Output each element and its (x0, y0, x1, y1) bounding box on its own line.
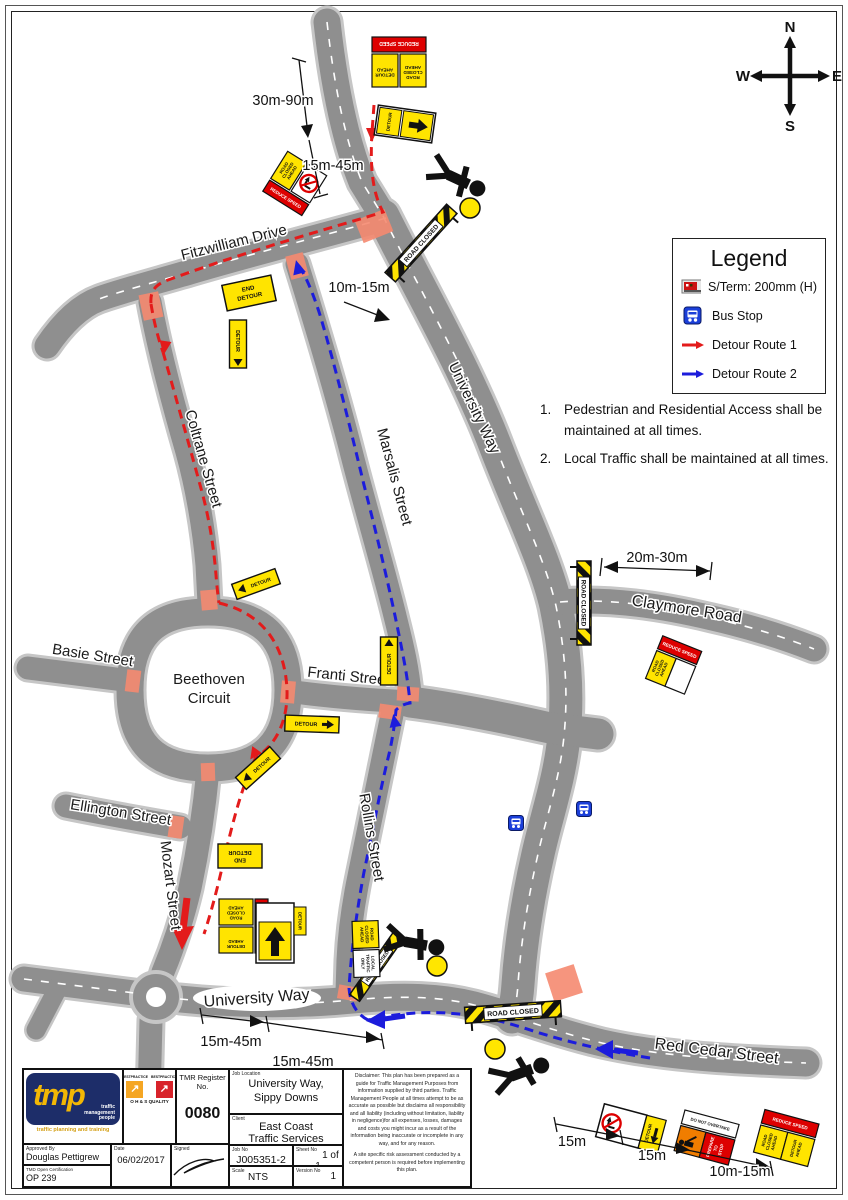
badge1-header: BESTPRACTICE (123, 1075, 148, 1079)
svg-text:AHEAD: AHEAD (228, 939, 243, 944)
signed-label: Signed (172, 1145, 228, 1153)
sign-detour-arrow-north: DETOUR (374, 105, 436, 143)
tmp-logo-brand: tmp (33, 1077, 84, 1113)
label-beethoven-2: Circuit (188, 690, 231, 707)
traffic-management-plan-page: { "compass": {"n": "N", "e": "E", "s": "… (0, 0, 848, 1200)
certification-value: OP 239 (24, 1173, 110, 1183)
job-no-label: Job No (230, 1146, 250, 1154)
sign-detour-up-arrow: DETOUR (256, 903, 306, 963)
job-location-label: Job Location (230, 1070, 342, 1078)
job-no-cell: Job No J005351-2 (229, 1145, 293, 1166)
svg-text:DETOUR: DETOUR (228, 849, 251, 855)
client-value-2: Traffic Services (230, 1133, 342, 1145)
sign-detour-coltrane-top: DETOUR (230, 320, 247, 368)
legend-item-route2: Detour Route 2 (673, 359, 825, 388)
svg-text:ONLY: ONLY (360, 958, 365, 970)
approved-by-value: Douglas Pettigrew (24, 1152, 110, 1162)
job-location-cell: Job Location University Way, Sippy Downs (229, 1069, 343, 1114)
svg-text:DETOUR: DETOUR (387, 653, 393, 674)
date-label: Date (112, 1145, 170, 1153)
sheet-no-label: Sheet No (294, 1146, 319, 1154)
dim-10m-15m-top: 10m-15m (328, 280, 389, 296)
dim-10m-15m-rc3: 10m-15m (709, 1164, 770, 1180)
signature (172, 1153, 226, 1181)
compass-rose: N S W E (736, 19, 842, 135)
sign-detour-coltrane-mid: DETOUR (232, 569, 281, 600)
badges-cell: BESTPRACTICE ↗ BESTPRACTICE ↗ O H & S QU… (123, 1069, 176, 1144)
version-label: Version No (294, 1167, 322, 1175)
certification-label: TMD Open Certification (24, 1166, 110, 1173)
dim-15m-45m-b1: 15m-45m (200, 1034, 261, 1050)
traffic-plan-map: Fitzwilliam Drive Coltrane Street Marsal… (0, 0, 848, 1200)
dim-15m-rc1: 15m (558, 1134, 586, 1150)
svg-text:AHEAD: AHEAD (359, 927, 365, 942)
sign-cluster-north: ROAD CLOSED AHEAD DETOUR AHEAD REDUCE SP… (372, 37, 426, 87)
svg-text:DETOUR: DETOUR (234, 330, 240, 352)
note-1: 1. Pedestrian and Residential Access sha… (540, 400, 838, 442)
scale-label: Scale (230, 1167, 247, 1175)
svg-text:REDUCE SPEED: REDUCE SPEED (379, 40, 419, 46)
red-arrow-icon (681, 340, 705, 350)
compass-e: E (832, 68, 842, 85)
job-location-value-2: Sippy Downs (230, 1092, 342, 1106)
sign-prepare-to-stop-redcedar: PREPARE TO STOP DO NOT OVERTAKE (674, 1110, 739, 1165)
tmr-value: 0080 (177, 1105, 228, 1123)
client-value-1: East Coast (230, 1121, 342, 1133)
certification-cell: TMD Open Certification OP 239 (23, 1165, 111, 1187)
version-cell: Version No 1 (293, 1166, 343, 1187)
scale-cell: Scale NTS (229, 1166, 293, 1187)
legend-item-bus-stop: Bus Stop (673, 301, 825, 330)
compass-s: S (785, 118, 795, 135)
badge2-arrow-icon: ↗ (156, 1081, 173, 1098)
date-cell: Date 06/02/2017 (111, 1144, 171, 1187)
bus-stop-icon (681, 306, 705, 325)
dim-30m-90m: 30m-90m (252, 93, 313, 109)
dim-20m-30m: 20m-30m (626, 550, 687, 566)
badges-caption: O H & S QUALITY (124, 1099, 175, 1104)
badge1-arrow-icon: ↗ (126, 1081, 143, 1098)
disclaimer-cell: Disclaimer: This plan has been prepared … (343, 1069, 471, 1187)
label-beethoven-1: Beethoven (173, 671, 245, 688)
svg-text:AHEAD: AHEAD (376, 68, 393, 73)
badge2-header: BESTPRACTICE (151, 1075, 176, 1079)
sign-detour-franti: DETOUR (285, 715, 340, 733)
blue-arrow-icon (681, 369, 705, 379)
dim-15m-45m-top: 15m-45m (302, 158, 363, 174)
sign-cluster-redcedar-east: ROAD CLOSED AHEAD DETOUR AHEAD REDUCE SP… (754, 1110, 819, 1167)
scale-value: NTS (248, 1172, 292, 1183)
svg-text:ROAD CLOSED: ROAD CLOSED (580, 580, 587, 627)
bus-stop-icon (509, 816, 524, 831)
tmp-logo-tagline: traffic planning and training (24, 1127, 122, 1133)
logo-cell: tmp traffic management people traffic pl… (23, 1069, 123, 1144)
disclaimer-paragraph-2: A site specific risk assessment conducte… (348, 1152, 466, 1175)
legend-title: Legend (673, 245, 825, 272)
svg-text:DETOUR: DETOUR (295, 721, 318, 728)
approved-by-cell: Approved By Douglas Pettigrew (23, 1144, 111, 1165)
legend-item-route1: Detour Route 1 (673, 330, 825, 359)
compass-w: W (736, 68, 751, 85)
client-cell: Client East Coast Traffic Services (229, 1114, 343, 1145)
sterm-icon (681, 279, 701, 295)
disclaimer-paragraph-1: Disclaimer: This plan has been prepared … (348, 1073, 466, 1148)
svg-text:END: END (234, 857, 246, 863)
controller-paddle (485, 1039, 505, 1059)
controller-paddle (427, 956, 447, 976)
roundabout-island (146, 987, 166, 1007)
title-block: tmp traffic management people traffic pl… (22, 1068, 472, 1188)
note-2-text: Local Traffic shall be maintained at all… (564, 449, 829, 470)
sign-end-detour-mozart: END DETOUR (218, 844, 262, 868)
note-1-text: Pedestrian and Residential Access shall … (564, 400, 838, 442)
job-location-value-1: University Way, (230, 1078, 342, 1092)
bus-stop-icon (577, 802, 592, 817)
legend-box: Legend S/Term: 200mm (H) Bus Stop Detour… (672, 238, 826, 394)
tmp-logo: tmp traffic management people (26, 1073, 120, 1125)
sign-end-detour-fitzwilliam: END DETOUR (222, 275, 276, 311)
note-2: 2. Local Traffic shall be maintained at … (540, 449, 838, 470)
svg-text:AHEAD: AHEAD (228, 906, 243, 911)
road-basie (28, 668, 132, 681)
date-value: 06/02/2017 (112, 1155, 170, 1166)
compass-n: N (785, 19, 796, 36)
sign-detour-marsalis: DETOUR (381, 637, 398, 685)
notes: 1. Pedestrian and Residential Access sha… (540, 400, 838, 477)
legend-item-sterm: S/Term: 200mm (H) (673, 272, 825, 301)
sheet-no-cell: Sheet No 1 of 1 (293, 1145, 343, 1166)
tmr-cell: TMR Register No. 0080 (176, 1069, 229, 1144)
signed-cell: Signed (171, 1144, 229, 1187)
traffic-controller-icon (424, 153, 491, 206)
logo-word-people: people (84, 1116, 115, 1122)
job-no-value: J005351-2 (230, 1151, 292, 1166)
svg-text:DETOUR: DETOUR (297, 912, 302, 931)
sign-cluster-claymore: ROAD CLOSED AHEAD REDUCE SPEED (646, 636, 702, 694)
tmr-label: TMR Register No. (177, 1073, 228, 1091)
svg-text:AHEAD: AHEAD (404, 65, 421, 70)
dim-15m-rc2: 15m (638, 1148, 666, 1164)
controller-paddle (460, 198, 480, 218)
road-centerlines (24, 22, 814, 1063)
